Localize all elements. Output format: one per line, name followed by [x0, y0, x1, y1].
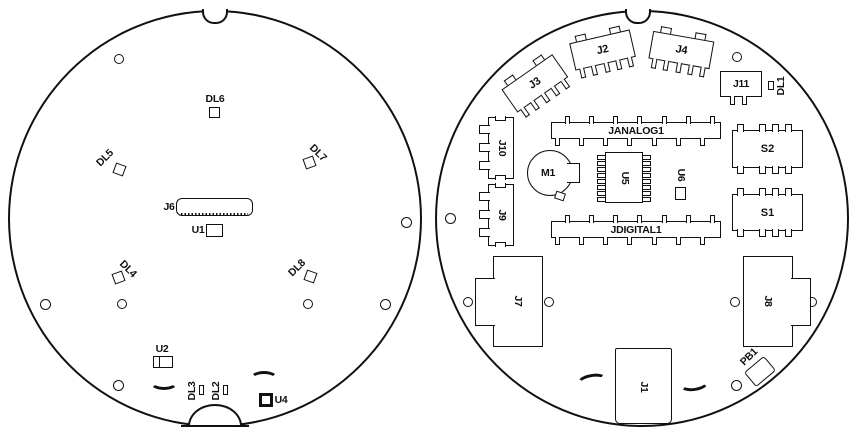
led-dl6-label: DL6: [206, 93, 225, 105]
header-jdigital1: JDIGITAL1: [551, 221, 721, 238]
switch-s1-label: S1: [761, 207, 774, 219]
ic-u1-label: U1: [192, 224, 205, 236]
connector-j6-label: J6: [163, 201, 174, 213]
header-janalog1-pins: [565, 116, 715, 124]
led-dl3-label: DL3: [186, 382, 198, 401]
microphone-m1-label: M1: [541, 167, 555, 179]
ic-u2: [153, 356, 173, 368]
connector-j11-label: J11: [733, 78, 749, 90]
solder-arc-mark: [150, 375, 178, 390]
ic-u6: [675, 187, 686, 200]
mounting-hole: [731, 380, 742, 391]
mounting-hole: [117, 299, 127, 309]
ic-u5-label: U5: [619, 172, 631, 185]
led-dl3: [199, 385, 204, 395]
usb-connector-j1: J1: [615, 348, 672, 424]
ic-u2-pin1-mark: [159, 357, 160, 367]
mounting-hole: [401, 217, 412, 228]
connector-j3-label: J3: [527, 75, 543, 92]
connector-j4-label: J4: [675, 43, 689, 57]
connector-j7-label: J7: [512, 295, 524, 306]
header-janalog1-pins: [555, 138, 705, 146]
ic-u6-label: U6: [675, 169, 687, 182]
header-janalog1-label: JANALOG1: [608, 125, 664, 137]
board-left-outline: [8, 10, 422, 427]
connector-j8-tab: [791, 278, 811, 326]
led-dl6: [209, 107, 220, 118]
mounting-hole: [113, 380, 124, 391]
switch-s1: S1: [732, 194, 803, 231]
connector-j9-label: J9: [496, 209, 508, 220]
led-dl2-label: DL2: [210, 382, 222, 401]
header-jdigital1-pins: [565, 215, 715, 223]
connector-j7-tab: [475, 278, 495, 326]
ic-u5: U5: [605, 152, 643, 203]
connector-j2-label: J2: [596, 43, 610, 57]
led-dl2: [223, 385, 228, 395]
microphone-m1-key: [567, 163, 580, 183]
connector-j11-pin: [742, 96, 747, 105]
mounting-hole: [303, 299, 313, 309]
connector-j6: [176, 198, 253, 216]
mounting-hole: [732, 52, 742, 62]
mounting-hole: [463, 297, 473, 307]
mounting-hole: [380, 299, 391, 310]
header-jdigital1-pins: [555, 237, 705, 245]
solder-arc-mark: [250, 371, 278, 386]
ic-u4-label: U4: [275, 394, 288, 406]
connector-j9: J9: [478, 184, 515, 246]
switch-s2: S2: [732, 130, 803, 168]
connector-j10: J10: [478, 117, 515, 179]
mounting-hole: [730, 297, 740, 307]
led-dl1: [768, 81, 774, 90]
mounting-hole: [114, 54, 124, 64]
connector-j6-pins: [181, 213, 248, 217]
header-janalog1: JANALOG1: [551, 122, 721, 139]
mounting-hole: [544, 297, 554, 307]
connector-j8-label: J8: [762, 295, 774, 306]
usb-connector-j1-label: J1: [638, 381, 650, 392]
mounting-hole: [40, 299, 51, 310]
led-dl1-label: DL1: [775, 77, 787, 96]
ic-u1: [206, 224, 223, 237]
ic-u4: [259, 393, 273, 407]
ic-u2-label: U2: [156, 343, 169, 355]
connector-j10-label: J10: [496, 140, 508, 157]
switch-s2-label: S2: [761, 143, 774, 155]
connector-j11-pin: [730, 96, 735, 105]
pcb-silkscreen-diagram: DL6 DL5 DL7 J6 U1 DL4 DL8 U2 DL3 DL2 U4 …: [0, 0, 850, 437]
header-jdigital1-label: JDIGITAL1: [610, 224, 661, 236]
mounting-hole: [445, 213, 456, 224]
board-left-bottom-edge: [181, 425, 249, 427]
